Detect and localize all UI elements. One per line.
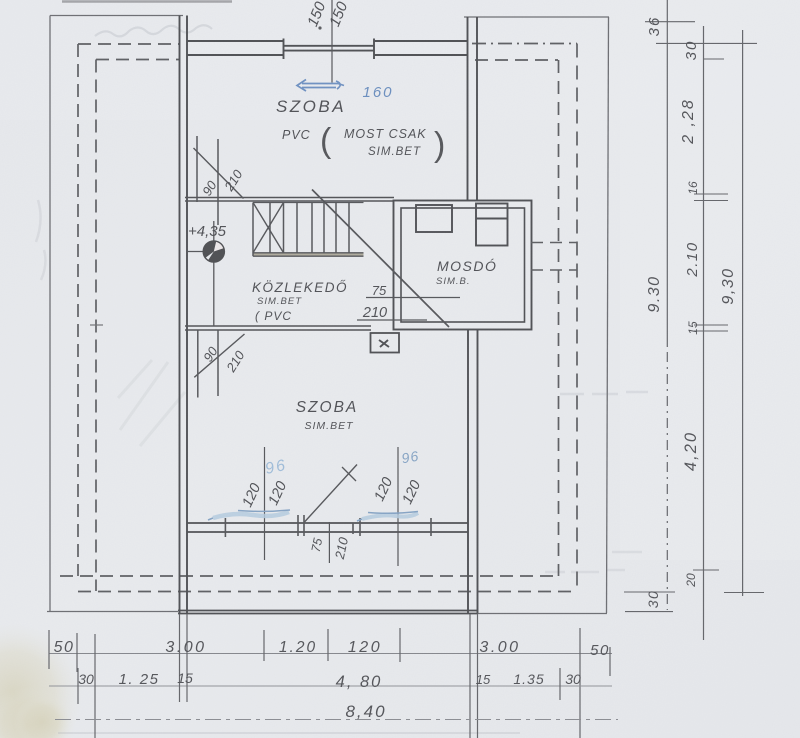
svg-text:KÖZLEKEDŐ: KÖZLEKEDŐ	[252, 280, 348, 295]
svg-text:2 ,28: 2 ,28	[680, 98, 697, 145]
svg-text:1.35: 1.35	[513, 671, 544, 687]
svg-text:36: 36	[646, 16, 663, 37]
svg-text:160: 160	[362, 84, 393, 101]
svg-text:PVC: PVC	[282, 128, 311, 142]
svg-text:30: 30	[645, 590, 661, 609]
svg-text:3.00: 3.00	[165, 639, 206, 656]
svg-text:15: 15	[476, 672, 491, 687]
svg-text:16: 16	[686, 181, 700, 195]
svg-text:4,20: 4,20	[682, 431, 700, 471]
svg-text:15: 15	[686, 321, 700, 335]
svg-text:50: 50	[54, 639, 75, 656]
svg-text:SIM.BET: SIM.BET	[368, 146, 421, 158]
svg-text:+4,35: +4,35	[188, 223, 227, 240]
svg-text:120: 120	[348, 639, 382, 656]
svg-text:8,40: 8,40	[345, 702, 386, 721]
svg-text:1.20: 1.20	[279, 639, 317, 656]
svg-text:3.00: 3.00	[479, 639, 520, 656]
svg-text:SIM.BET: SIM.BET	[257, 296, 302, 307]
svg-text:( PVC: ( PVC	[255, 309, 292, 323]
svg-text:(: (	[320, 122, 332, 160]
svg-text:2.10: 2.10	[684, 241, 701, 277]
svg-text:96: 96	[400, 448, 420, 467]
svg-text:1. 25: 1. 25	[119, 671, 160, 688]
svg-text:75: 75	[372, 283, 387, 298]
svg-text:9.30: 9.30	[646, 275, 663, 312]
svg-text:SIM.B.: SIM.B.	[436, 276, 471, 287]
svg-text:MOST CSAK: MOST CSAK	[344, 127, 427, 141]
svg-text:15: 15	[177, 670, 193, 686]
svg-text:30: 30	[565, 671, 581, 687]
svg-text:SZOBA: SZOBA	[276, 97, 346, 116]
svg-text:30: 30	[683, 40, 700, 61]
svg-text:4, 80: 4, 80	[336, 673, 383, 691]
svg-text:SZOBA: SZOBA	[296, 399, 359, 416]
svg-text:30: 30	[78, 671, 94, 687]
svg-text:9,30: 9,30	[720, 267, 737, 304]
svg-text:50: 50	[590, 642, 610, 659]
svg-text:210: 210	[362, 305, 387, 321]
svg-text:75: 75	[309, 537, 326, 554]
svg-text:20: 20	[684, 573, 698, 588]
svg-text:MOSDÓ: MOSDÓ	[437, 258, 497, 274]
svg-text:SIM.BET: SIM.BET	[304, 420, 354, 432]
svg-text:): )	[434, 126, 445, 164]
